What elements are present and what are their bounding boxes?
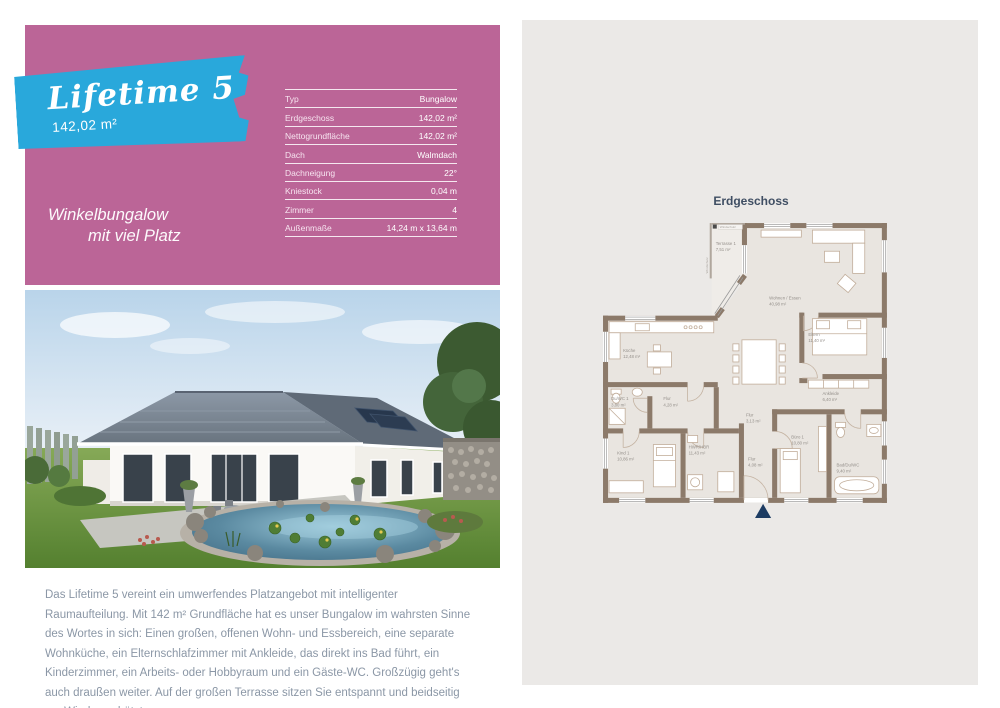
room-label-terrasse: Terrasse 1 (716, 241, 737, 246)
room-label-flur3: Flur (748, 457, 756, 462)
room-label-buero: Büro 1 (791, 434, 804, 439)
windbreak-wall (710, 223, 712, 278)
room-area-eltern: 11,40 m² (808, 338, 825, 343)
spec-label: Typ (285, 94, 299, 104)
room-area-ankleide: 6,40 m² (822, 397, 837, 402)
room-label-duwc: Du/WC 1 (611, 396, 629, 401)
room-area-flur1: 4,28 m² (663, 402, 678, 407)
spec-row: Außenmaße 14,24 m x 13,64 m (285, 219, 457, 237)
room-label-flur2: Flur (746, 412, 754, 417)
spec-value: 142,02 m² (419, 131, 457, 141)
spec-label: Dachneigung (285, 168, 335, 178)
description-text: Das Lifetime 5 vereint ein umwerfendes P… (45, 586, 471, 708)
spec-label: Kniestock (285, 186, 322, 196)
spec-row: Nettogrundfläche 142,02 m² (285, 127, 457, 145)
spec-row: Kniestock 0,04 m (285, 182, 457, 200)
floorplan-panel: Erdgeschoss (522, 20, 978, 685)
spec-row: Dach Walmdach (285, 145, 457, 163)
room-area-wohnen: 40,98 m² (769, 302, 787, 307)
spec-table: Typ Bungalow Erdgeschoss 142,02 m² Netto… (285, 89, 457, 237)
tagline-line1: Winkelbungalow (48, 205, 181, 226)
room-label-bad: Bad/Du/WC (837, 463, 860, 468)
spec-row: Dachneigung 22° (285, 164, 457, 182)
house-photo (25, 290, 500, 568)
spec-row: Typ Bungalow (285, 90, 457, 108)
spec-row: Erdgeschoss 142,02 m² (285, 108, 457, 126)
spec-value: Walmdach (417, 150, 457, 160)
spec-value: 22° (444, 168, 457, 178)
house-photo-illustration (25, 290, 500, 568)
room-area-duwc: 3,80 m² (611, 402, 626, 407)
windbreak-side-text: Windschutz (705, 257, 709, 274)
room-area-terrasse: 7,51 m² (716, 247, 731, 252)
room-area-kueche: 12,48 m² (623, 354, 641, 359)
spec-value: 14,24 m x 13,64 m (387, 223, 457, 233)
pond (180, 500, 460, 566)
spec-label: Außenmaße (285, 223, 332, 233)
spec-value: 4 (452, 205, 457, 215)
room-label-hwr: HWR/HBR (689, 445, 710, 450)
north-arrow-icon (755, 504, 771, 518)
room-area-buero: 10,80 m² (791, 441, 809, 446)
spec-value: 0,04 m (431, 186, 457, 196)
room-area-bad: 9,40 m² (837, 469, 852, 474)
room-label-wohnen: Wohnen / Essen (769, 296, 801, 301)
room-area-kind: 10,86 m² (617, 457, 635, 462)
room-area-flur3: 4,08 m² (748, 463, 763, 468)
spec-value: Bungalow (420, 94, 457, 104)
room-label-eltern: Eltern (808, 332, 820, 337)
room-area-hwr: 11,43 m² (689, 451, 706, 456)
room-label-flur1: Flur (663, 396, 671, 401)
floorplan-svg: Windschutz Windschutz Terrasse 1 7,51 m²… (593, 215, 909, 519)
floorplan-title: Erdgeschoss (593, 194, 909, 208)
windbreak-label-text: Windschutz (720, 225, 737, 229)
hero-panel: Lifetime 5 142,02 m² Winkelbungalow mit … (25, 25, 500, 285)
floorplan-container: Erdgeschoss (593, 194, 909, 524)
room-label-kueche: Küche (623, 348, 636, 353)
spec-value: 142,02 m² (419, 113, 457, 123)
spec-row: Zimmer 4 (285, 200, 457, 218)
gabion-wall (443, 438, 500, 500)
room-label-kind: Kind 1 (617, 451, 630, 456)
spec-label: Dach (285, 150, 305, 160)
room-area-flur2: 3,13 m² (746, 418, 761, 423)
spec-label: Zimmer (285, 205, 314, 215)
entrance-opening (744, 498, 768, 503)
spec-label: Nettogrundfläche (285, 131, 350, 141)
room-label-ankleide: Ankleide (822, 391, 839, 396)
spec-label: Erdgeschoss (285, 113, 334, 123)
tagline-line2: mit viel Platz (88, 226, 181, 247)
brand-ribbon: Lifetime 5 142,02 m² (14, 55, 253, 155)
model-tagline: Winkelbungalow mit viel Platz (48, 205, 181, 247)
